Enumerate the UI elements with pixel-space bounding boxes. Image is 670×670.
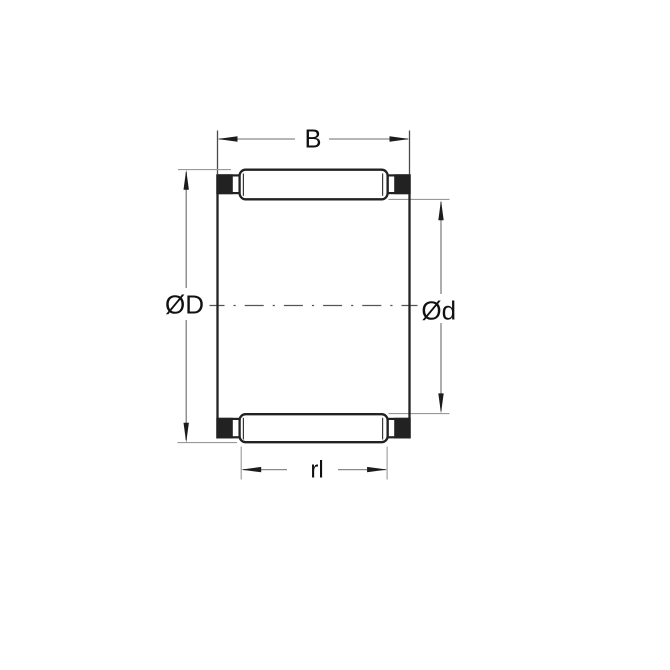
svg-text:Ød: Ød bbox=[421, 295, 456, 325]
svg-text:ØD: ØD bbox=[165, 290, 204, 320]
svg-text:B: B bbox=[304, 126, 321, 154]
svg-text:rl: rl bbox=[310, 456, 323, 483]
